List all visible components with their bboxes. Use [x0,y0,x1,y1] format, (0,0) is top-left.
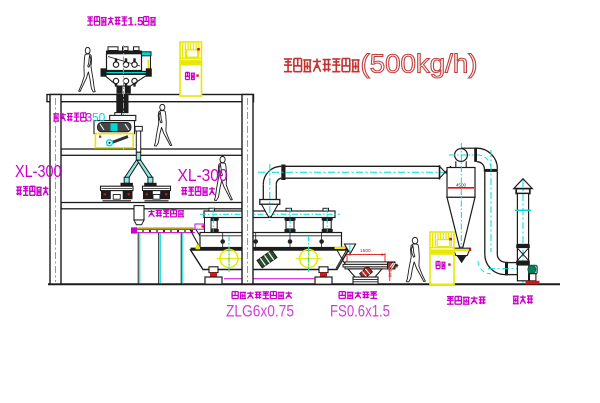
svg-text:(500kg/h): (500kg/h) [361,51,478,79]
svg-text:540: 540 [388,270,393,278]
svg-text:FS0.6x1.5: FS0.6x1.5 [330,303,390,321]
svg-text:XL-300: XL-300 [178,165,228,185]
svg-text:XL-300: XL-300 [15,161,62,181]
svg-text:1500: 1500 [360,248,371,254]
svg-text:50: 50 [92,111,106,125]
svg-text:ZLG6x0.75: ZLG6x0.75 [226,303,294,321]
svg-text:1.5: 1.5 [128,16,145,28]
